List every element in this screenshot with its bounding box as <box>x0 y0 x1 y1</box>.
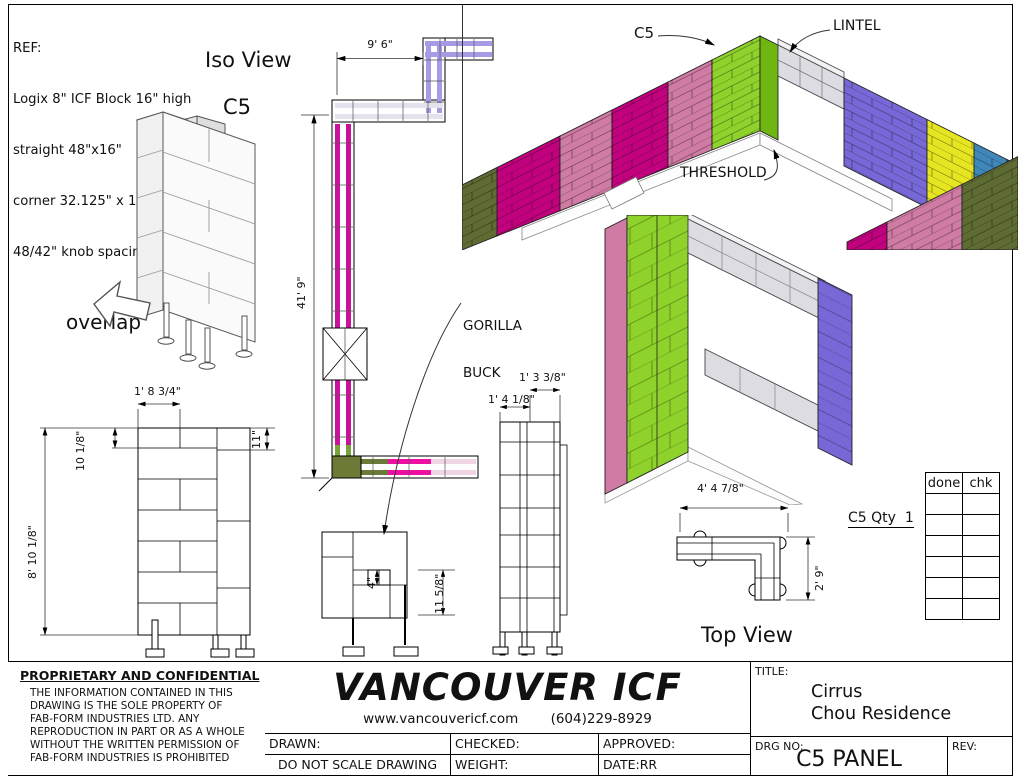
iso-view-label: Iso View <box>205 48 292 72</box>
table-row <box>926 578 1000 599</box>
top-view <box>660 475 835 615</box>
company-website: www.vancouvericf.com <box>363 711 518 727</box>
check-cell <box>963 578 1000 599</box>
company-block: VANCOUVER ICF www.vancouvericf.com (604)… <box>265 661 751 775</box>
corner-detail-iso-view <box>560 215 880 505</box>
checked-field: CHECKED: <box>450 733 598 754</box>
check-cell <box>926 578 963 599</box>
check-cell <box>926 599 963 620</box>
company-contact: www.vancouvericf.com (604)229-8929 <box>265 711 750 727</box>
check-cell <box>963 515 1000 536</box>
proprietary-line: FAB-FORM INDUSTRIES IS PROHIBITED <box>30 752 265 765</box>
project-subtitle: Chou Residence <box>811 704 1012 724</box>
buck-gap-dim: 4" <box>366 577 379 589</box>
check-cell <box>926 557 963 578</box>
check-table: done chk <box>925 472 1000 620</box>
elev-top-course-dim: 10 1/8" <box>75 431 88 471</box>
title-area: TITLE: Cirrus Chou Residence DRG NO: C5 … <box>751 661 1012 775</box>
check-table-header-chk: chk <box>963 473 1000 494</box>
threshold-callout-label: THRESHOLD <box>680 165 767 181</box>
proprietary-line: THE INFORMATION CONTAINED IN THIS <box>30 687 265 700</box>
check-cell <box>926 536 963 557</box>
elev-height-dim: 8' 10 1/8" <box>27 525 40 579</box>
overlap-arrow-icon <box>88 278 198 338</box>
plan-height-dim: 41' 9" <box>296 276 309 309</box>
assembly-iso-view <box>462 5 1018 250</box>
front-elevation-view <box>25 383 277 675</box>
rev-cell: REV: <box>947 736 1012 776</box>
c5-qty-label: C5 Qty 1 <box>848 510 914 528</box>
c5-iso-view <box>75 98 290 388</box>
side-bottom-width-dim: 1' 4 1/8" <box>488 394 535 407</box>
drg-no-cell: DRG NO: C5 PANEL <box>751 736 947 776</box>
check-cell <box>963 536 1000 557</box>
drg-no-label: DRG NO: <box>755 740 804 753</box>
check-table-header-done: done <box>926 473 963 494</box>
proprietary-line: FAB-FORM INDUSTRIES LTD. ANY <box>30 713 265 726</box>
check-cell <box>926 494 963 515</box>
buck-height-dim: 11 5/8" <box>434 574 447 614</box>
check-cell <box>963 599 1000 620</box>
weight-field: WEIGHT: <box>450 754 598 776</box>
side-elevation-view <box>483 368 583 660</box>
top-view-width-dim: 4' 4 7/8" <box>697 483 744 496</box>
table-row <box>926 557 1000 578</box>
no-scale-note: DO NOT SCALE DRAWING <box>265 754 450 776</box>
table-row <box>926 536 1000 557</box>
side-top-width-dim: 1' 3 3/8" <box>519 372 566 385</box>
elev-width-dim: 1' 8 3/4" <box>134 386 181 399</box>
company-phone: (604)229-8929 <box>551 711 652 727</box>
drawing-sheet: REF: Logix 8" ICF Block 16" high straigh… <box>0 0 1018 779</box>
proprietary-block: PROPRIETARY AND CONFIDENTIAL THE INFORMA… <box>8 661 266 775</box>
c5-callout-label: C5 <box>634 25 654 42</box>
check-cell <box>963 557 1000 578</box>
approved-field: APPROVED: <box>598 733 750 754</box>
check-cell <box>926 515 963 536</box>
proprietary-line: WITHOUT THE WRITTEN PERMISSION OF <box>30 739 265 752</box>
top-view-label: Top View <box>701 623 793 647</box>
title-label: TITLE: <box>755 665 1012 678</box>
proprietary-line: DRAWING IS THE SOLE PROPERTY OF <box>30 700 265 713</box>
table-row <box>926 515 1000 536</box>
rev-label: REV: <box>952 740 977 753</box>
company-name: VANCOUVER ICF <box>265 666 750 709</box>
ref-line: REF: <box>13 40 191 57</box>
gorilla-buck-line: GORILLA <box>463 319 522 335</box>
project-title: Cirrus <box>811 682 1012 702</box>
proprietary-line: REPRODUCTION IN PART OR AS A WHOLE <box>30 726 265 739</box>
top-view-depth-dim: 2' 9" <box>814 565 827 591</box>
check-cell <box>963 494 1000 515</box>
lintel-callout-label: LINTEL <box>833 18 881 34</box>
elev-right-course-dim: 11" <box>251 430 264 449</box>
plan-width-dim: 9' 6" <box>357 39 403 52</box>
proprietary-heading: PROPRIETARY AND CONFIDENTIAL <box>20 668 265 683</box>
drawn-field: DRAWN: <box>265 733 450 754</box>
table-row <box>926 599 1000 620</box>
date-field: DATE:RR <box>598 754 750 776</box>
table-row <box>926 494 1000 515</box>
